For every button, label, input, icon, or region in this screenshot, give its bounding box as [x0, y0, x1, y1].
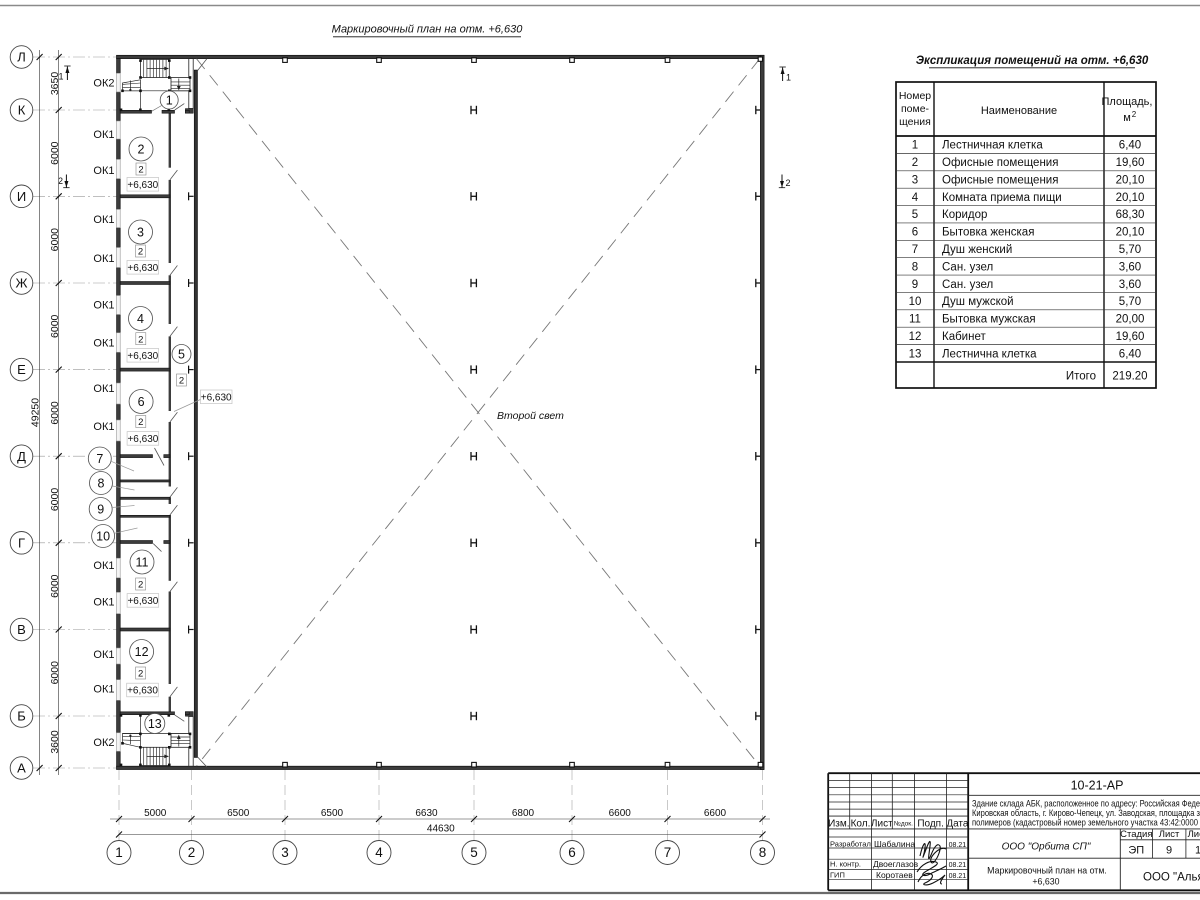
- svg-text:6000: 6000: [49, 141, 61, 165]
- svg-text:5: 5: [470, 845, 478, 860]
- svg-text:2: 2: [58, 176, 63, 186]
- svg-text:полимеров (кадастровый номер з: полимеров (кадастровый номер земельного …: [972, 817, 1198, 827]
- svg-text:19,60: 19,60: [1116, 331, 1145, 343]
- svg-text:08.21: 08.21: [949, 873, 967, 880]
- svg-text:20,10: 20,10: [1116, 192, 1145, 204]
- svg-text:12: 12: [909, 331, 922, 343]
- svg-text:поме-: поме-: [901, 103, 930, 115]
- svg-text:ООО "Орбита СП": ООО "Орбита СП": [1002, 840, 1091, 852]
- svg-text:7: 7: [912, 244, 918, 256]
- svg-text:4: 4: [375, 845, 383, 860]
- svg-text:1: 1: [115, 845, 123, 860]
- svg-text:Наименование: Наименование: [981, 105, 1057, 117]
- svg-text:ОК1: ОК1: [93, 129, 114, 141]
- svg-text:Л: Л: [17, 50, 26, 65]
- svg-text:ОК1: ОК1: [93, 214, 114, 226]
- svg-text:Листов: Листов: [1188, 829, 1200, 840]
- svg-text:12: 12: [135, 645, 149, 659]
- svg-text:6600: 6600: [609, 808, 632, 819]
- svg-text:Второй свет: Второй свет: [497, 410, 564, 422]
- svg-text:2: 2: [138, 165, 143, 176]
- svg-text:2: 2: [138, 417, 143, 428]
- svg-text:6630: 6630: [415, 808, 438, 819]
- svg-text:08.21: 08.21: [949, 862, 967, 869]
- svg-text:11: 11: [136, 555, 149, 569]
- svg-text:219.20: 219.20: [1112, 371, 1147, 383]
- svg-text:3,60: 3,60: [1119, 261, 1141, 273]
- svg-text:08.21: 08.21: [949, 842, 967, 849]
- svg-text:19,60: 19,60: [1116, 157, 1145, 169]
- svg-text:В: В: [17, 622, 26, 637]
- svg-text:Лист: Лист: [871, 818, 893, 829]
- svg-text:6000: 6000: [49, 314, 61, 338]
- svg-text:2: 2: [1132, 110, 1137, 119]
- svg-text:10: 10: [96, 529, 110, 543]
- svg-text:20,00: 20,00: [1116, 314, 1145, 326]
- svg-text:Лестничная клетка: Лестничная клетка: [942, 140, 1043, 152]
- svg-text:Комната приема пищи: Комната приема пищи: [942, 192, 1062, 204]
- svg-text:3: 3: [912, 174, 918, 186]
- svg-text:Сан. узел: Сан. узел: [942, 261, 993, 273]
- svg-text:6000: 6000: [49, 228, 61, 252]
- svg-text:7: 7: [96, 452, 103, 466]
- svg-text:3600: 3600: [49, 730, 61, 754]
- svg-text:6: 6: [138, 395, 145, 409]
- svg-text:Сан. узел: Сан. узел: [942, 279, 993, 291]
- svg-text:Кабинет: Кабинет: [942, 331, 986, 343]
- svg-text:ОК2: ОК2: [93, 737, 114, 749]
- svg-text:Итого: Итого: [1066, 371, 1096, 383]
- svg-text:ОК1: ОК1: [93, 253, 114, 265]
- svg-text:6600: 6600: [704, 808, 727, 819]
- svg-text:ГИП: ГИП: [830, 871, 845, 880]
- svg-text:3: 3: [281, 845, 289, 860]
- svg-text:20,10: 20,10: [1116, 174, 1145, 186]
- svg-text:Здание склада АБК, расположенн: Здание склада АБК, расположенное по адре…: [972, 798, 1200, 808]
- svg-text:11: 11: [909, 314, 921, 326]
- svg-text:+6,630: +6,630: [127, 263, 158, 274]
- svg-text:+6,630: +6,630: [127, 434, 158, 445]
- svg-text:1: 1: [58, 72, 63, 82]
- svg-text:2: 2: [138, 334, 143, 345]
- svg-text:2: 2: [786, 178, 791, 188]
- svg-text:5: 5: [178, 347, 185, 361]
- svg-text:10: 10: [909, 296, 922, 308]
- svg-text:ОК1: ОК1: [93, 300, 114, 312]
- svg-text:+6,630: +6,630: [127, 180, 158, 191]
- svg-text:6000: 6000: [49, 661, 61, 685]
- svg-text:Душ мужской: Душ мужской: [942, 296, 1014, 308]
- svg-text:ОК1: ОК1: [93, 649, 114, 661]
- svg-text:Шабалина: Шабалина: [874, 839, 915, 849]
- svg-text:Офисные помещения: Офисные помещения: [942, 174, 1058, 186]
- svg-text:13: 13: [909, 348, 922, 360]
- svg-text:Бытовка мужская: Бытовка мужская: [942, 314, 1036, 326]
- svg-text:+6,630: +6,630: [201, 392, 232, 403]
- svg-text:2: 2: [138, 669, 143, 680]
- svg-text:6500: 6500: [227, 808, 250, 819]
- svg-text:6800: 6800: [512, 808, 535, 819]
- svg-text:Площадь,: Площадь,: [1102, 96, 1153, 108]
- svg-text:20,10: 20,10: [1116, 227, 1145, 239]
- svg-text:4: 4: [137, 312, 144, 326]
- svg-text:8: 8: [759, 845, 767, 860]
- svg-text:2: 2: [179, 376, 184, 387]
- svg-text:Кол.: Кол.: [851, 818, 871, 829]
- svg-text:ОК1: ОК1: [93, 597, 114, 609]
- svg-text:9: 9: [912, 279, 918, 291]
- svg-text:+6,630: +6,630: [127, 596, 158, 607]
- svg-text:1: 1: [786, 73, 791, 83]
- svg-text:8: 8: [912, 261, 918, 273]
- svg-text:Коридор: Коридор: [942, 209, 987, 221]
- svg-text:Двоеглазов: Двоеглазов: [873, 859, 919, 869]
- svg-text:68,30: 68,30: [1116, 209, 1145, 221]
- svg-text:1: 1: [1195, 845, 1200, 857]
- svg-text:+6,630: +6,630: [1032, 877, 1059, 887]
- svg-text:6,40: 6,40: [1119, 140, 1141, 152]
- svg-text:2: 2: [138, 142, 145, 156]
- svg-text:44630: 44630: [427, 823, 455, 834]
- svg-text:3: 3: [137, 225, 144, 239]
- svg-text:1: 1: [912, 140, 918, 152]
- svg-text:Н. контр.: Н. контр.: [830, 860, 861, 869]
- svg-text:5000: 5000: [144, 808, 167, 819]
- svg-text:7: 7: [664, 845, 672, 860]
- svg-text:Экспликация помещений на отм.: Экспликация помещений на отм. +6,630: [916, 55, 1149, 67]
- svg-text:6000: 6000: [49, 488, 61, 512]
- svg-text:4: 4: [912, 192, 919, 204]
- svg-text:Офисные помещения: Офисные помещения: [942, 157, 1058, 169]
- svg-text:Лист: Лист: [1159, 829, 1180, 840]
- svg-text:ОК1: ОК1: [93, 560, 114, 572]
- svg-text:5,70: 5,70: [1119, 244, 1141, 256]
- svg-text:И: И: [17, 189, 26, 204]
- svg-text:2: 2: [138, 580, 143, 591]
- svg-text:6000: 6000: [49, 574, 61, 598]
- svg-text:6000: 6000: [49, 401, 61, 425]
- svg-text:Кировская область, г. Кирово-Ч: Кировская область, г. Кирово-Чепецк, ул.…: [972, 808, 1200, 818]
- svg-text:Дата: Дата: [946, 818, 969, 829]
- svg-text:Разработал: Разработал: [830, 840, 871, 849]
- svg-text:5,70: 5,70: [1119, 296, 1141, 308]
- svg-text:Маркировочный план на отм. +6,: Маркировочный план на отм. +6,630: [332, 24, 524, 36]
- svg-text:3,60: 3,60: [1119, 279, 1141, 291]
- svg-text:щения: щения: [899, 116, 931, 128]
- svg-text:Д: Д: [17, 449, 26, 464]
- svg-text:+6,630: +6,630: [127, 686, 158, 697]
- svg-text:+6,630: +6,630: [127, 351, 158, 362]
- svg-text:№док.: №док.: [894, 820, 913, 827]
- svg-text:Изм.: Изм.: [828, 818, 849, 829]
- svg-text:м: м: [1123, 112, 1131, 124]
- svg-text:2: 2: [138, 247, 143, 258]
- svg-text:8: 8: [98, 476, 105, 490]
- svg-text:10-21-АР: 10-21-АР: [1071, 779, 1124, 793]
- svg-text:6,40: 6,40: [1119, 348, 1141, 360]
- svg-text:ОК1: ОК1: [93, 165, 114, 177]
- svg-text:Душ женский: Душ женский: [942, 244, 1012, 256]
- svg-text:1: 1: [166, 93, 173, 107]
- svg-text:6: 6: [912, 227, 918, 239]
- svg-text:6500: 6500: [321, 808, 344, 819]
- svg-text:2: 2: [188, 845, 196, 860]
- svg-text:Маркировочный план на отм.: Маркировочный план на отм.: [987, 866, 1107, 876]
- svg-text:Лестнична клетка: Лестнична клетка: [942, 348, 1037, 360]
- svg-text:Коротаев: Коротаев: [876, 870, 913, 880]
- svg-text:Ж: Ж: [15, 276, 27, 291]
- svg-text:Е: Е: [17, 362, 26, 377]
- svg-text:А: А: [17, 761, 26, 776]
- svg-text:ОК1: ОК1: [93, 383, 114, 395]
- svg-text:ОК2: ОК2: [93, 78, 114, 90]
- svg-text:ОК1: ОК1: [93, 338, 114, 350]
- svg-text:Г: Г: [18, 535, 25, 550]
- svg-text:ООО "Альянс: ООО "Альянс: [1143, 871, 1200, 883]
- svg-text:ЭП: ЭП: [1128, 845, 1144, 857]
- svg-text:2: 2: [912, 157, 918, 169]
- svg-text:Номер: Номер: [899, 90, 931, 102]
- svg-text:К: К: [18, 103, 26, 118]
- svg-text:6: 6: [568, 845, 576, 860]
- svg-text:49250: 49250: [29, 398, 41, 427]
- svg-text:9: 9: [97, 502, 104, 516]
- svg-text:13: 13: [148, 717, 162, 731]
- svg-text:Бытовка женская: Бытовка женская: [942, 227, 1034, 239]
- svg-text:5: 5: [912, 209, 918, 221]
- svg-text:Подп.: Подп.: [917, 818, 944, 829]
- svg-text:ОК1: ОК1: [93, 684, 114, 696]
- svg-text:Стадия: Стадия: [1120, 829, 1152, 840]
- svg-text:9: 9: [1166, 845, 1172, 857]
- svg-text:ОК1: ОК1: [93, 421, 114, 433]
- svg-text:Б: Б: [17, 709, 26, 724]
